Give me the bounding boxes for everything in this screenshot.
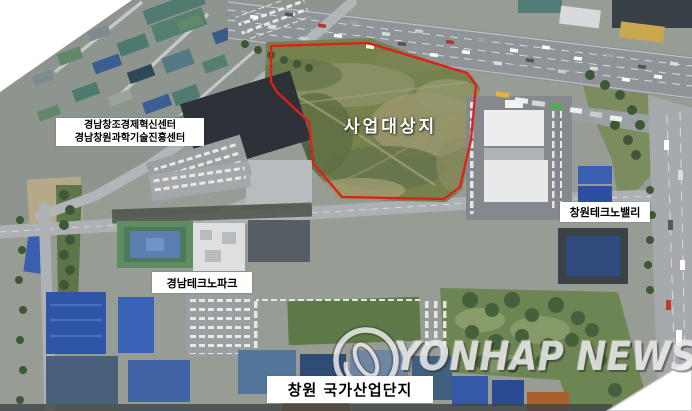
label-techno-park-text: 경남테크노파크 [167, 275, 238, 291]
label-industrial-complex: 창원 국가산업단지 [267, 376, 433, 403]
label-industrial-complex-text: 창원 국가산업단지 [288, 379, 413, 400]
label-techno-park: 경남테크노파크 [152, 272, 252, 293]
watermark-text: YONHAP NEWS [394, 334, 692, 380]
aerial-photo: YONHAP NEWS 경남창조경제혁신센터 경남창원과학기술진흥센터 사업대상… [0, 0, 692, 411]
label-project-site: 사업대상지 [344, 112, 437, 137]
bottom-road-shadow [0, 404, 612, 411]
label-techno-valley-text: 창원테크노밸리 [570, 204, 641, 220]
label-innovation-center: 경남창조경제혁신센터 경남창원과학기술진흥센터 [56, 118, 204, 146]
label-innovation-line1: 경남창조경제혁신센터 [84, 119, 176, 132]
label-innovation-line2: 경남창원과학기술진흥센터 [75, 132, 185, 145]
label-techno-valley: 창원테크노밸리 [560, 202, 650, 222]
